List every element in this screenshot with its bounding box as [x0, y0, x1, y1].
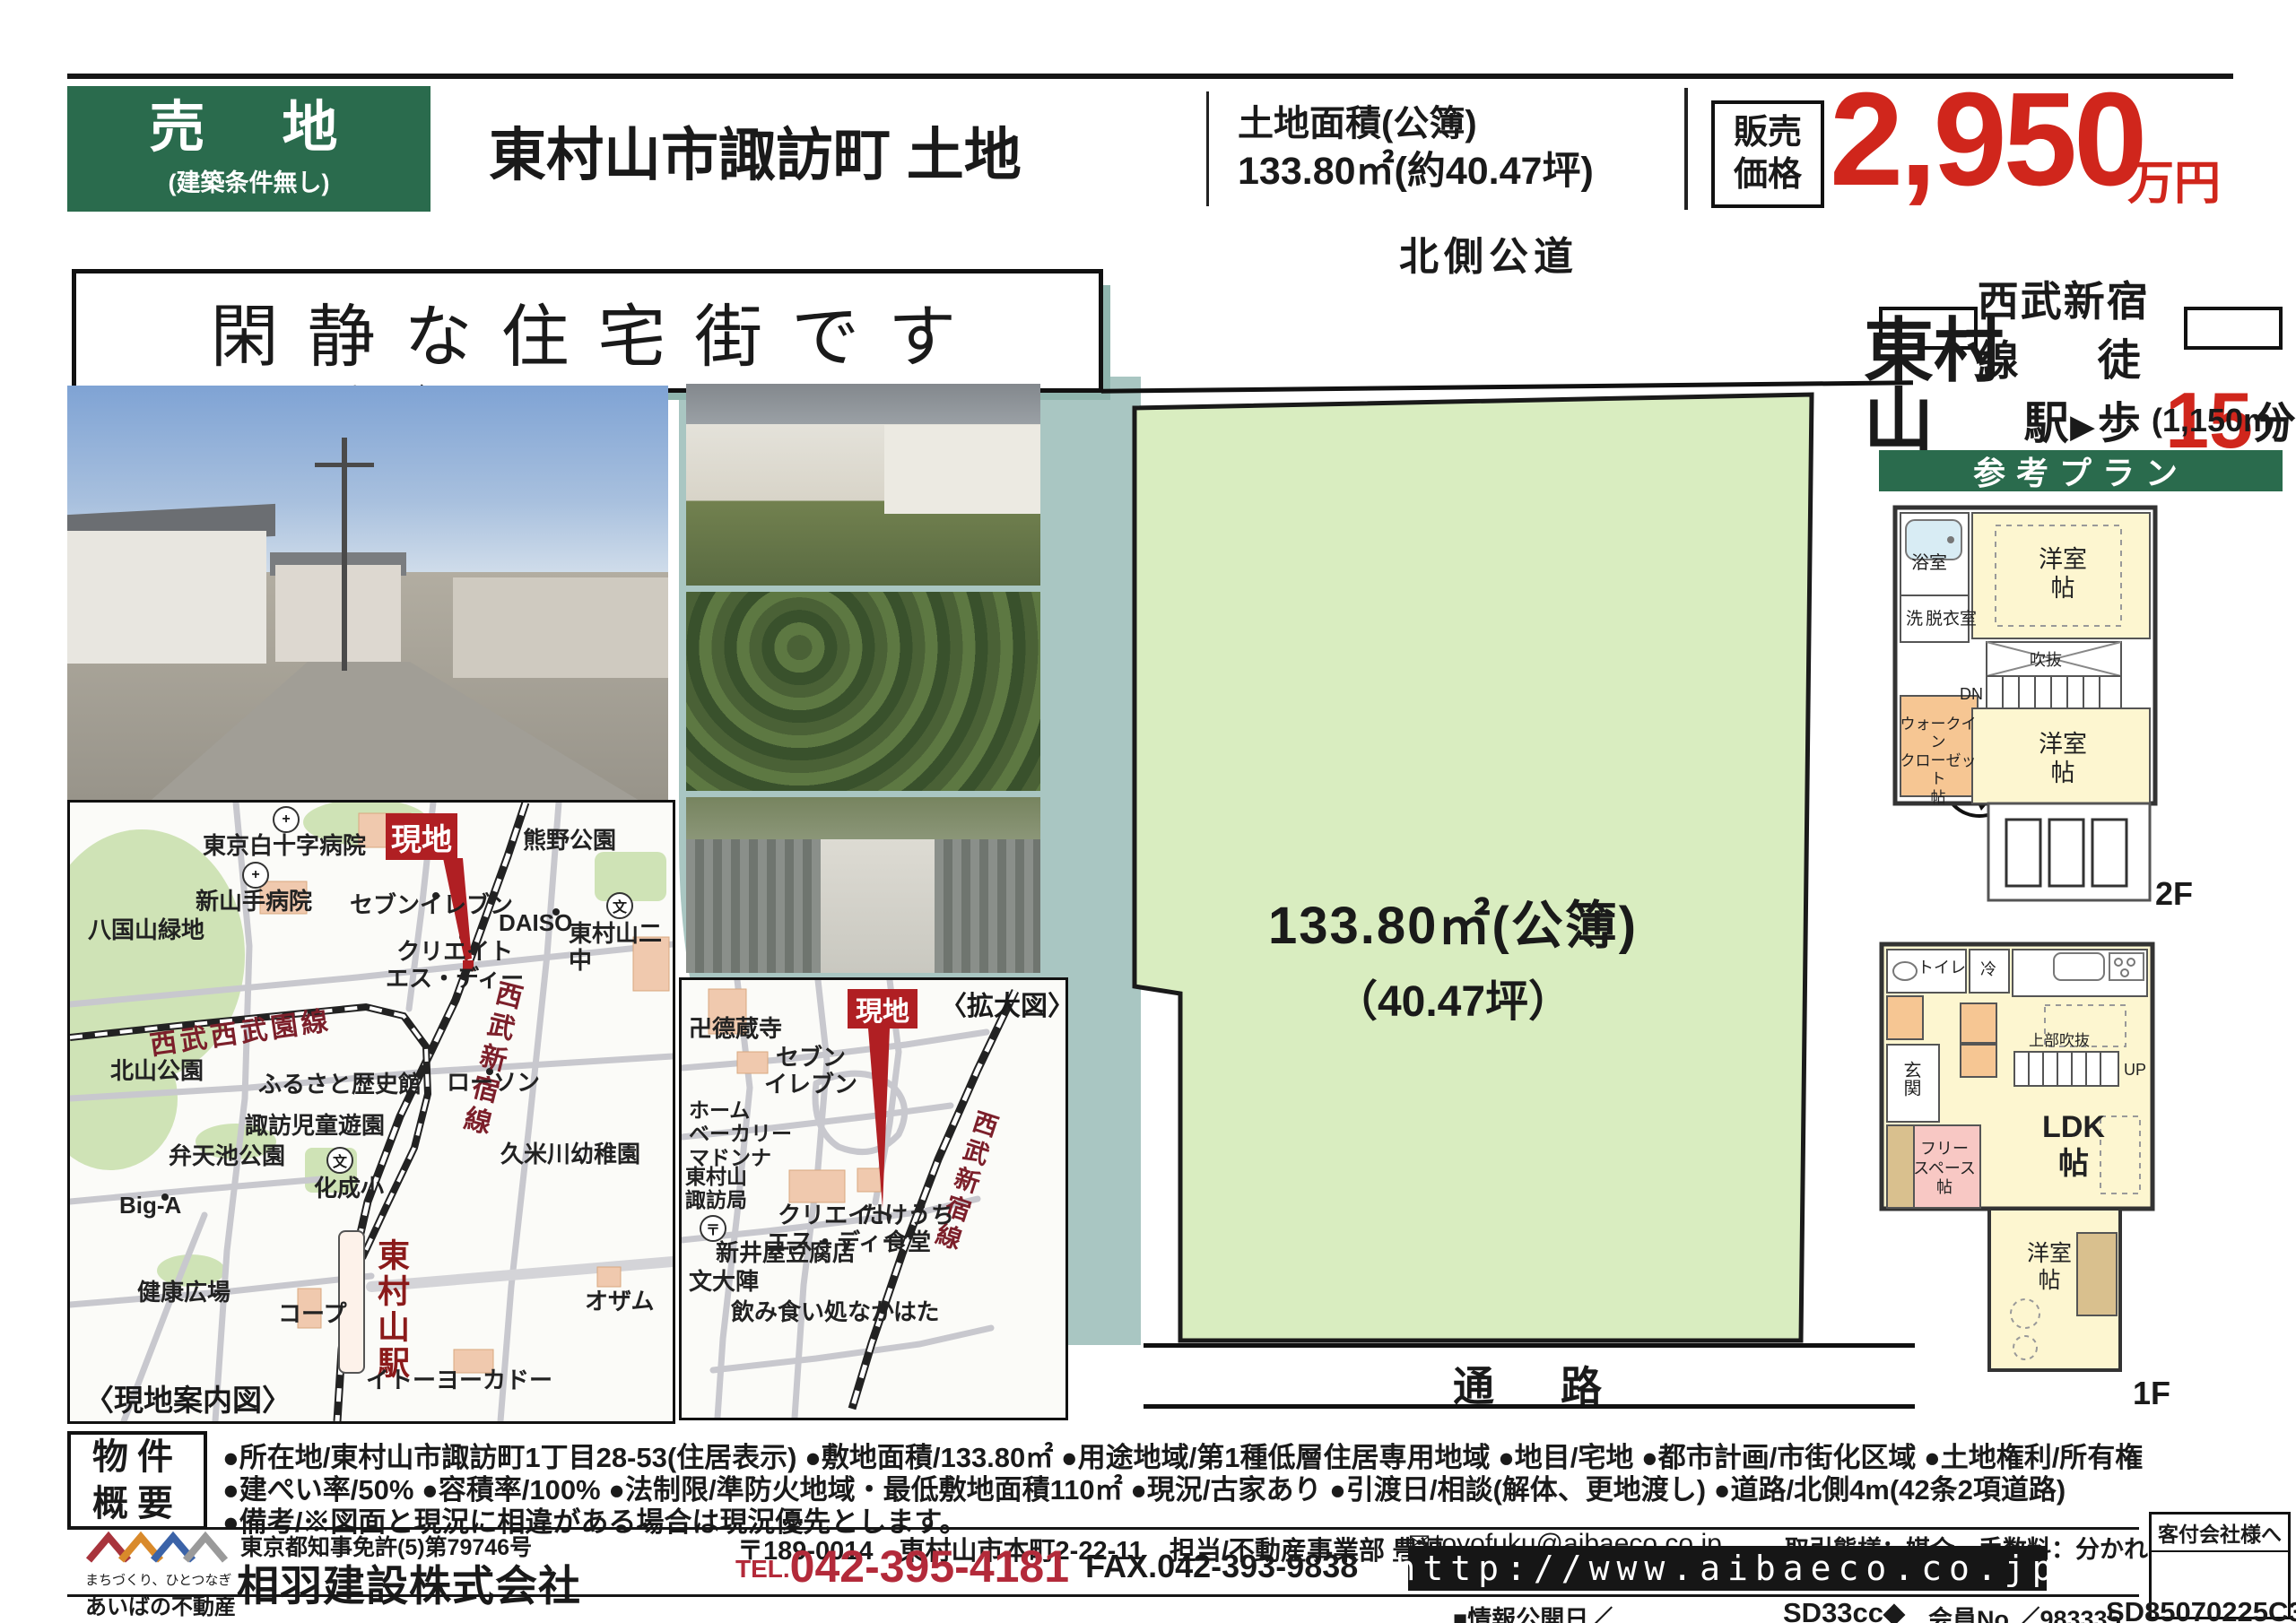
map-label: 新井屋豆腐店 — [716, 1240, 856, 1267]
map-label: オザム — [585, 1289, 654, 1315]
sale-type-box: 売 地 (建築条件無し) — [67, 86, 430, 212]
tel-label: TEL. — [735, 1555, 790, 1584]
plot-area-text: 133.80㎡(公簿) （40.47坪） — [1193, 883, 1713, 1028]
site-marker-tail — [861, 1028, 897, 1212]
enlarged-map: 卍德蔵寺 セブン イレブン 現地 〈拡大図〉 西武新宿線 ホーム ベーカリー マ… — [679, 977, 1068, 1420]
map-label: 東村山二中 — [569, 921, 673, 975]
hospital-icon: + — [273, 806, 300, 833]
header-divider-1 — [1206, 91, 1209, 206]
photo-house-garden — [686, 384, 1040, 586]
map-label: 卍德蔵寺 — [689, 1016, 782, 1043]
info-date-label: ■情報公開日／ — [1453, 1600, 1613, 1623]
map-label: ふるさと歴史館 — [258, 1072, 422, 1098]
map-label: Big-A — [119, 1193, 181, 1219]
map-label: ホーム ベーカリー マドンナ — [689, 1098, 792, 1169]
room-label-toilet: トイレ — [1918, 959, 1966, 978]
room-label-free-space: フリー スペース 帖 — [1909, 1140, 1980, 1198]
photo-fence-alley — [686, 797, 1040, 973]
stairs-up-label: UP — [2124, 1061, 2146, 1081]
photo-street-view — [67, 386, 668, 800]
floor-plan-1f: トイレ 冷 玄関 フリー スペース 帖 上部吹抜 UP LDK 帖 洋室 帖 1… — [1874, 937, 2292, 1435]
floor-plan-2f: 浴室 洗 脱衣室 洋室 帖 吹抜 DN ウォークイン クローゼット 帖 洋室 帖… — [1888, 500, 2283, 926]
photo-house-1 — [67, 531, 266, 664]
logo-tagline: まちづくり、ひとつなぎ — [85, 1570, 238, 1589]
map-label: 文大陣 — [689, 1269, 759, 1296]
map-label: 八国山緑地 — [88, 917, 204, 944]
catchphrase-text: 閑静な住宅街です — [190, 282, 985, 380]
sale-condition-label: (建築条件無し) — [169, 163, 330, 198]
room-label-entrance: 玄関 — [1900, 1061, 1921, 1097]
code-sd85: SD85070225C305 — [2106, 1596, 2296, 1623]
walk-distance: (1,150m) — [2063, 402, 2283, 439]
map-label: ローソン — [447, 1070, 540, 1097]
photo-fence-left — [686, 839, 821, 973]
catchphrase-box: 閑静な住宅街です — [72, 269, 1103, 393]
school-icon: 文 — [326, 1147, 353, 1174]
flyer-page: 売 地 (建築条件無し) 東村山市諏訪町 土地 土地面積(公簿) 133.80㎡… — [0, 0, 2296, 1623]
hospital-icon: + — [242, 862, 269, 889]
map-label: セブンイレブン — [350, 892, 513, 919]
plan-banner: 参考プラン — [1879, 450, 2283, 491]
room-label-wic: ウォークイン クローゼット 帖 — [1893, 716, 1983, 807]
map-label: 北山公園 — [110, 1058, 204, 1085]
agent-box-label: 客付会社様へ — [2152, 1515, 2288, 1552]
company-logo: まちづくり、ひとつなぎ あいばの不動産 — [85, 1530, 238, 1620]
map-label: 諏訪児童遊園 — [245, 1113, 385, 1140]
station-name: 東村山 — [1864, 316, 2024, 456]
room-label-ldk: LDK 帖 — [2029, 1109, 2118, 1183]
room-label-western-room: 洋室 帖 — [2022, 730, 2103, 788]
map-label: 化成小 — [314, 1176, 384, 1202]
room-label-bath: 浴室 — [1911, 552, 1947, 574]
north-road-label: 北側公道 — [1336, 224, 1641, 282]
guide-map: + 東京白十字病院 現地 熊野公園 + 新山手病院 八国山緑地 セブンイレブン … — [67, 800, 675, 1424]
map-label: 熊野公園 — [523, 828, 616, 855]
plot-area-line2: （40.47坪） — [1193, 966, 1713, 1028]
price-unit: 万円 — [2127, 145, 2221, 213]
enlarged-map-caption: 〈拡大図〉 — [940, 984, 1065, 1023]
map-label: 久米川幼稚園 — [500, 1141, 640, 1168]
page-title: 東村山市諏訪町 土地 — [489, 90, 1022, 211]
photo-wall — [884, 425, 1040, 514]
tel-number: 042-395-4181 — [790, 1544, 1069, 1589]
sale-type-label: 売 地 — [149, 100, 348, 156]
map-label: 東村山 諏訪局 — [685, 1165, 747, 1212]
passage-line-top — [1144, 1343, 1915, 1348]
guide-map-caption: 〈現地案内図〉 — [84, 1376, 291, 1419]
outline-box-label: 物件 概要 — [67, 1431, 207, 1530]
plot-area-line1: 133.80㎡(公簿) — [1193, 883, 1713, 959]
map-label: 新山手病院 — [196, 889, 312, 916]
land-plot-shape — [1112, 386, 1830, 1354]
room-label-void: 吹抜 — [2030, 651, 2062, 671]
floor-label-2f: 2F — [2155, 875, 2193, 913]
photo-fence-right — [935, 839, 1041, 973]
room-label-western-room: 洋室 帖 — [2013, 1240, 2085, 1294]
logo-peaks-icon — [85, 1530, 238, 1564]
photo-garden-trees — [686, 592, 1040, 791]
site-marker: 現地 — [386, 813, 457, 860]
phone-row: TEL. 042-395-4181 FAX.042-393-9838 — [735, 1544, 1358, 1589]
price-label-box: 販売 価格 — [1711, 100, 1824, 208]
company-url: http://www.aibaeco.co.jp — [1408, 1546, 2047, 1591]
map-label: 飲み食い処なかはた — [731, 1299, 939, 1326]
station-label: 東村山駅 — [368, 1238, 414, 1382]
map-label: たけうち 食堂 — [861, 1202, 954, 1256]
upper-void-label: 上部吹抜 — [2029, 1032, 2090, 1050]
member-number: 会員No.／983335 — [1928, 1600, 2121, 1623]
land-area-label: 土地面積(公簿) — [1238, 100, 1594, 147]
map-label: 東京白十字病院 — [203, 833, 382, 860]
price-value: 2,950 — [1830, 74, 2144, 206]
photo-house-2 — [275, 565, 401, 662]
room-label-fridge: 冷 — [1980, 960, 1996, 980]
land-area-block: 土地面積(公簿) 133.80㎡(約40.47坪) — [1238, 100, 1594, 197]
map-label: DAISO — [499, 910, 572, 937]
floor-label-1f: 1F — [2133, 1375, 2170, 1412]
map-label: イトーヨーカドー — [366, 1367, 552, 1394]
passage-line-bottom — [1144, 1404, 1915, 1409]
map-label: 健康広場 — [137, 1280, 230, 1306]
stairs-down-label: DN — [1960, 685, 1983, 705]
photo-road — [67, 662, 668, 800]
header-divider-2 — [1684, 88, 1688, 210]
map-label: セブン イレブン — [764, 1045, 857, 1098]
land-area-value: 133.80㎡(約40.47坪) — [1238, 147, 1594, 197]
map-label: 弁天池公園 — [169, 1143, 285, 1170]
room-label-wash: 洗 — [1906, 610, 1923, 630]
school-icon: 文 — [606, 892, 633, 919]
fax-number: FAX.042-393-9838 — [1085, 1548, 1358, 1585]
photo-utility-pole — [342, 438, 347, 671]
map-label: コープ — [278, 1301, 346, 1328]
photo-pole-crossarm — [315, 463, 374, 467]
post-office-icon: 〒 — [700, 1215, 726, 1242]
room-label-dressing: 脱衣室 — [1926, 610, 1977, 630]
room-label-western-room: 洋室 帖 — [2022, 545, 2103, 603]
code-sd33: SD33cc◆ — [1783, 1597, 1905, 1623]
company-name: 相羽建設株式会社 — [237, 1551, 581, 1613]
site-marker: 現地 — [848, 989, 918, 1028]
photo-house-3 — [453, 577, 668, 678]
